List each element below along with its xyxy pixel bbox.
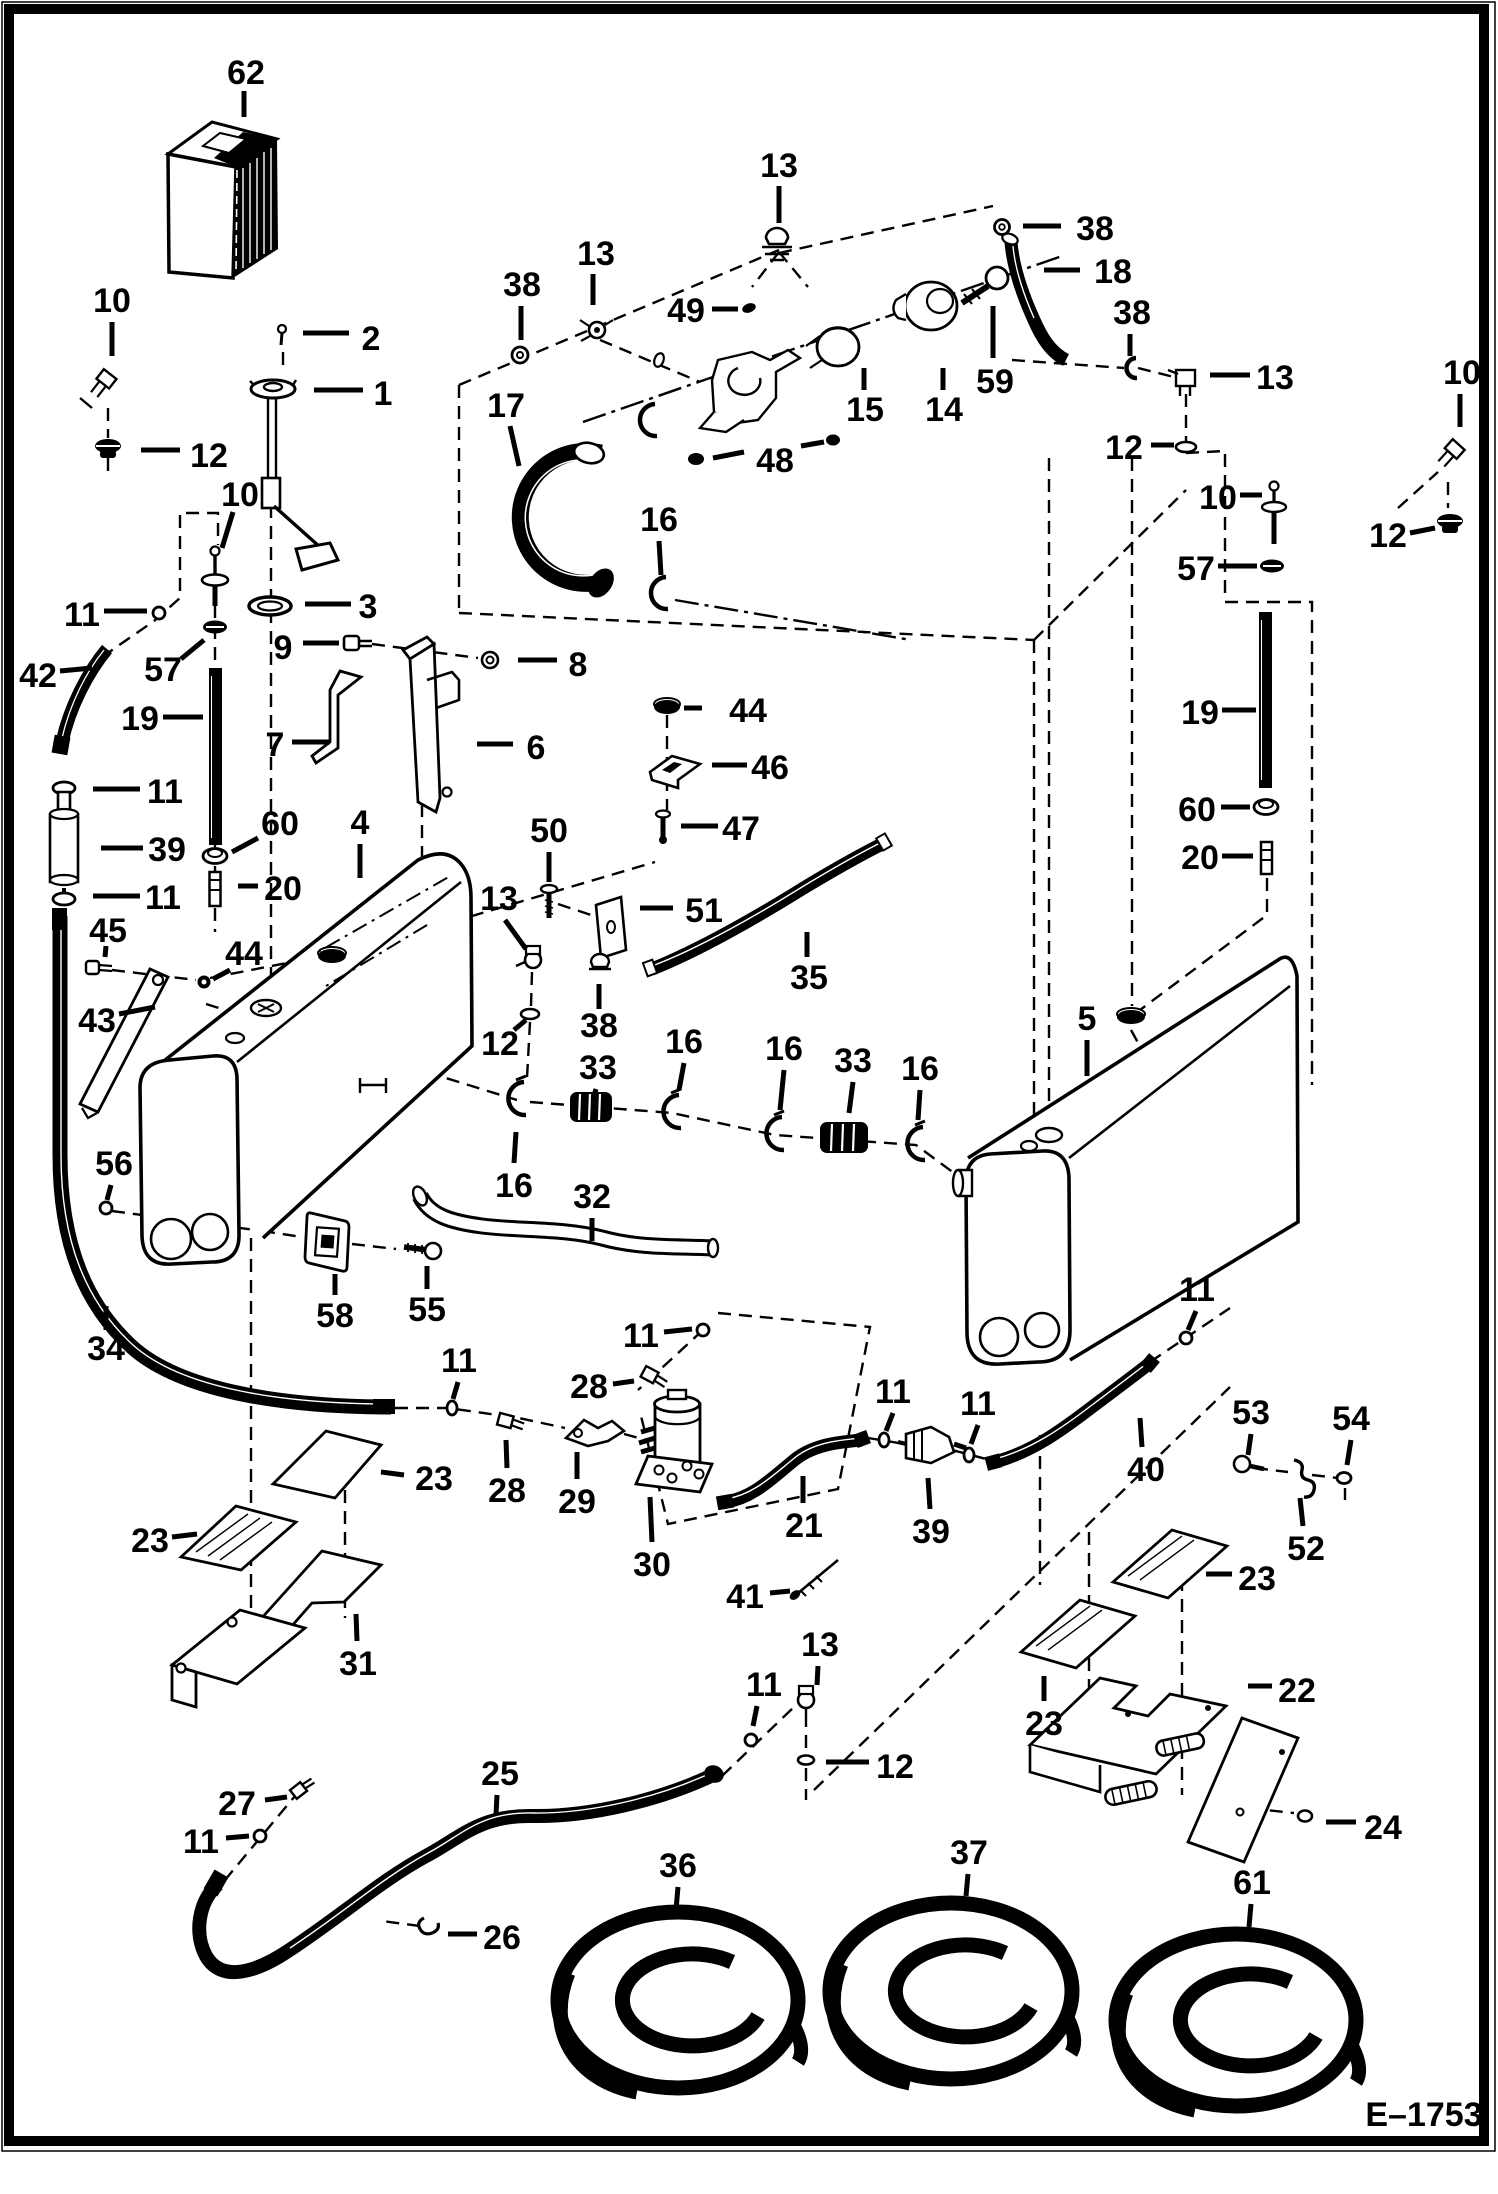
svg-text:37: 37 [950, 1834, 988, 1872]
svg-text:39: 39 [148, 831, 186, 869]
svg-text:12: 12 [876, 1748, 914, 1786]
svg-text:16: 16 [495, 1167, 533, 1205]
svg-text:24: 24 [1364, 1809, 1402, 1847]
svg-text:16: 16 [765, 1030, 803, 1068]
svg-text:13: 13 [760, 147, 798, 185]
svg-text:19: 19 [1181, 694, 1219, 732]
svg-text:12: 12 [1105, 429, 1143, 467]
svg-text:35: 35 [790, 959, 828, 997]
svg-text:11: 11 [960, 1385, 996, 1423]
svg-text:38: 38 [1113, 294, 1151, 332]
svg-text:13: 13 [577, 235, 615, 273]
svg-text:16: 16 [640, 501, 678, 539]
svg-text:12: 12 [190, 437, 228, 475]
svg-text:1: 1 [374, 375, 393, 413]
svg-text:10: 10 [221, 476, 259, 514]
svg-text:11: 11 [64, 596, 100, 634]
svg-text:11: 11 [746, 1666, 782, 1704]
svg-text:38: 38 [503, 266, 541, 304]
svg-text:34: 34 [87, 1330, 125, 1368]
svg-text:13: 13 [1256, 359, 1294, 397]
svg-text:11: 11 [623, 1317, 659, 1355]
svg-text:20: 20 [264, 870, 302, 908]
svg-text:55: 55 [408, 1291, 446, 1329]
svg-text:28: 28 [570, 1368, 608, 1406]
svg-text:38: 38 [1076, 210, 1114, 248]
svg-text:28: 28 [488, 1472, 526, 1510]
svg-text:26: 26 [483, 1919, 521, 1957]
svg-text:4: 4 [351, 804, 370, 842]
svg-text:29: 29 [558, 1483, 596, 1521]
svg-text:59: 59 [976, 363, 1014, 401]
svg-text:7: 7 [266, 726, 285, 764]
svg-text:45: 45 [89, 912, 127, 950]
svg-text:13: 13 [801, 1626, 839, 1664]
svg-text:33: 33 [579, 1049, 617, 1087]
svg-text:41: 41 [726, 1578, 764, 1616]
svg-text:36: 36 [659, 1847, 697, 1885]
svg-text:62: 62 [227, 54, 265, 92]
svg-text:32: 32 [573, 1178, 611, 1216]
svg-text:27: 27 [218, 1785, 256, 1823]
svg-text:25: 25 [481, 1755, 519, 1793]
svg-text:11: 11 [441, 1342, 477, 1380]
svg-text:57: 57 [1177, 550, 1215, 588]
svg-text:58: 58 [316, 1297, 354, 1335]
svg-text:12: 12 [481, 1025, 519, 1063]
svg-text:23: 23 [415, 1460, 453, 1498]
svg-text:21: 21 [785, 1507, 823, 1545]
svg-text:46: 46 [751, 749, 789, 787]
svg-text:44: 44 [225, 935, 263, 973]
svg-text:31: 31 [339, 1645, 377, 1683]
svg-text:60: 60 [261, 805, 299, 843]
svg-text:60: 60 [1178, 791, 1216, 829]
svg-text:18: 18 [1094, 253, 1132, 291]
svg-text:54: 54 [1332, 1400, 1370, 1438]
svg-text:52: 52 [1287, 1530, 1325, 1568]
svg-text:44: 44 [729, 692, 767, 730]
svg-text:23: 23 [1025, 1705, 1063, 1743]
svg-text:51: 51 [685, 892, 723, 930]
svg-text:15: 15 [846, 391, 884, 429]
svg-text:20: 20 [1181, 839, 1219, 877]
svg-text:49: 49 [667, 292, 705, 330]
svg-text:10: 10 [93, 282, 131, 320]
svg-text:9: 9 [274, 629, 293, 667]
svg-text:42: 42 [19, 657, 57, 695]
svg-text:11: 11 [875, 1373, 911, 1411]
svg-text:47: 47 [722, 810, 760, 848]
svg-text:5: 5 [1078, 1000, 1097, 1038]
svg-text:E–1753: E–1753 [1365, 2096, 1482, 2134]
svg-text:16: 16 [665, 1023, 703, 1061]
svg-text:11: 11 [1179, 1271, 1215, 1309]
svg-text:14: 14 [925, 391, 963, 429]
svg-text:57: 57 [144, 651, 182, 689]
svg-text:16: 16 [901, 1050, 939, 1088]
svg-text:22: 22 [1278, 1672, 1316, 1710]
svg-text:3: 3 [359, 588, 378, 626]
svg-text:19: 19 [121, 700, 159, 738]
svg-text:30: 30 [633, 1546, 671, 1584]
svg-text:11: 11 [183, 1823, 219, 1861]
svg-text:39: 39 [912, 1513, 950, 1551]
svg-text:11: 11 [147, 773, 183, 811]
svg-text:33: 33 [834, 1042, 872, 1080]
svg-text:40: 40 [1127, 1451, 1165, 1489]
svg-text:10: 10 [1199, 479, 1237, 517]
svg-text:10: 10 [1443, 354, 1481, 392]
svg-text:53: 53 [1232, 1394, 1270, 1432]
svg-text:23: 23 [1238, 1560, 1276, 1598]
svg-text:43: 43 [78, 1002, 116, 1040]
svg-text:38: 38 [580, 1007, 618, 1045]
svg-text:17: 17 [487, 387, 525, 425]
svg-text:56: 56 [95, 1145, 133, 1183]
svg-text:13: 13 [480, 880, 518, 918]
svg-text:8: 8 [569, 646, 588, 684]
svg-text:61: 61 [1233, 1864, 1271, 1902]
svg-text:23: 23 [131, 1522, 169, 1560]
svg-text:6: 6 [527, 729, 546, 767]
svg-text:2: 2 [362, 320, 381, 358]
svg-text:12: 12 [1369, 517, 1407, 555]
svg-text:48: 48 [756, 442, 794, 480]
svg-text:11: 11 [145, 879, 181, 917]
svg-text:50: 50 [530, 812, 568, 850]
